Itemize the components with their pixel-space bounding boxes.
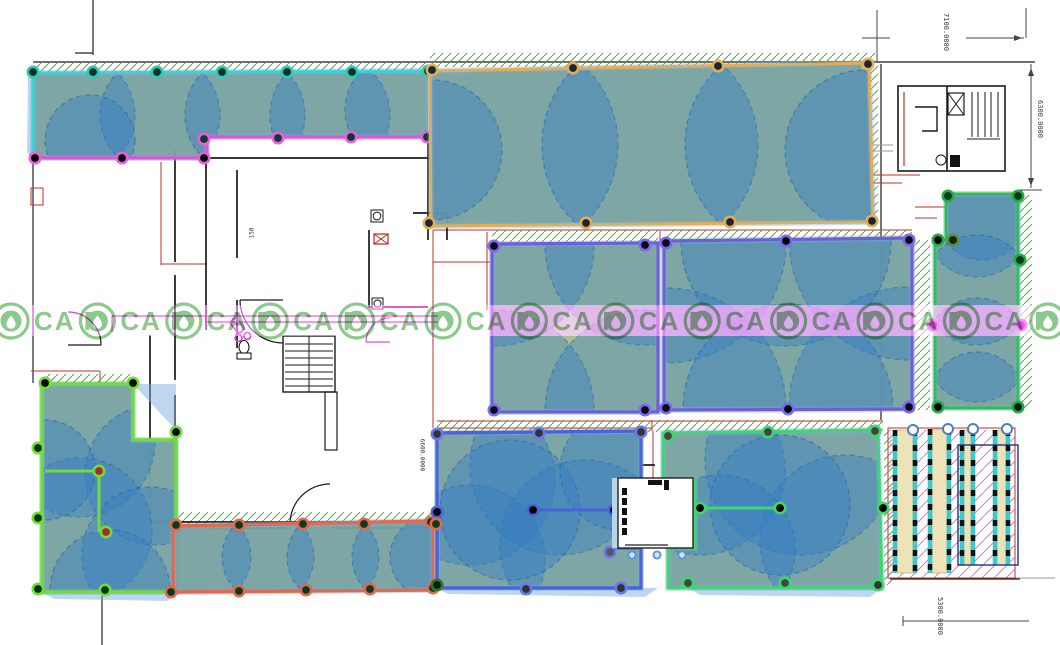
device-dot[interactable] [430, 518, 443, 531]
elevator-mark [622, 498, 627, 505]
device-dot[interactable] [872, 579, 885, 592]
watermark-row: CA PCA PCA PCA PCA PCA PCA PCA PCA PCA P… [0, 304, 1060, 338]
device-dot[interactable] [233, 585, 246, 598]
device-dot[interactable] [281, 66, 294, 79]
dimension-label: 5300.0000 [936, 597, 944, 635]
device-dot[interactable] [170, 519, 183, 532]
device-dot[interactable] [615, 582, 628, 595]
device-dot[interactable] [116, 152, 129, 165]
device-dot[interactable] [431, 579, 444, 592]
device-dot[interactable] [877, 502, 890, 515]
device-dot[interactable] [358, 518, 371, 531]
device-dot-center[interactable] [34, 585, 42, 593]
device-dot-center[interactable] [637, 428, 645, 436]
device-dot[interactable] [660, 402, 673, 415]
device-dot-center[interactable] [535, 429, 543, 437]
device-dot[interactable] [39, 377, 52, 390]
device-dot-center[interactable] [432, 520, 440, 528]
device-dot[interactable] [903, 401, 916, 414]
device-dot[interactable] [423, 217, 436, 230]
device-dot-center[interactable] [949, 236, 957, 244]
device-dot-center[interactable] [1014, 403, 1022, 411]
device-dot-center[interactable] [235, 587, 243, 595]
device-dot-center[interactable] [102, 528, 110, 536]
device-dot[interactable] [639, 404, 652, 417]
device-dot-center[interactable] [34, 514, 42, 522]
device-dot-center[interactable] [879, 504, 887, 512]
dimension-label: 150 [249, 228, 256, 239]
device-dot-center[interactable] [347, 133, 355, 141]
elevator-mark [622, 528, 627, 535]
device-dot-center[interactable] [784, 405, 792, 413]
device-dot[interactable] [198, 133, 211, 146]
dimension-label: 7100.0000 [942, 13, 950, 51]
device-dot-center[interactable] [582, 219, 590, 227]
device-dot-center[interactable] [172, 428, 180, 436]
device-dot[interactable] [1012, 401, 1025, 414]
device-dot-center[interactable] [366, 585, 374, 593]
elevator-mark [622, 518, 627, 525]
device-dot-center[interactable] [569, 64, 577, 72]
device-dot[interactable] [151, 66, 164, 79]
device-dot-center[interactable] [235, 521, 243, 529]
panel-bar-fill [964, 430, 971, 565]
device-dot[interactable] [32, 512, 45, 525]
device-dot-center[interactable] [433, 430, 441, 438]
device-dot[interactable] [32, 442, 45, 455]
device-dot[interactable] [869, 425, 882, 438]
floor-plan-canvas: CA PCA PCA PCA PCA PCA PCA PCA PCA PCA P… [0, 0, 1060, 645]
device-dot-center[interactable] [934, 236, 942, 244]
device-dot[interactable] [272, 132, 285, 145]
device-dot-center[interactable] [776, 504, 784, 512]
device-dot-center[interactable] [726, 218, 734, 226]
zone-strip-south [159, 511, 470, 603]
device-dot[interactable] [774, 502, 787, 515]
device-dot-center[interactable] [905, 236, 913, 244]
device-dot-center[interactable] [218, 68, 226, 76]
dimension-label: 6300.0000 [1036, 100, 1044, 138]
device-dot[interactable] [198, 152, 211, 165]
panel-valve-circle[interactable] [908, 425, 918, 435]
device-dot-center[interactable] [905, 403, 913, 411]
device-dot-center[interactable] [641, 241, 649, 249]
device-dot-center[interactable] [153, 68, 161, 76]
device-dot[interactable] [762, 426, 775, 439]
device-dot[interactable] [527, 504, 540, 517]
device-dot-center[interactable] [433, 508, 441, 516]
toilet-tank [237, 353, 251, 359]
device-dot[interactable] [866, 215, 879, 228]
device-dot[interactable] [87, 66, 100, 79]
device-dot[interactable] [662, 430, 675, 443]
device-dot-center[interactable] [302, 586, 310, 594]
device-dot[interactable] [694, 502, 707, 515]
device-dot-center[interactable] [529, 506, 537, 514]
device-dot[interactable] [678, 551, 687, 560]
device-dot-center[interactable] [490, 242, 498, 250]
zone-hall-north [362, 37, 945, 253]
device-dot[interactable] [426, 64, 439, 77]
device-dot[interactable] [712, 60, 725, 73]
device-dot-center[interactable] [274, 134, 282, 142]
device-dot[interactable] [932, 401, 945, 414]
device-dot[interactable] [93, 465, 106, 478]
device-dot-center[interactable] [1016, 256, 1024, 264]
device-dot[interactable] [297, 518, 310, 531]
device-dot[interactable] [431, 428, 444, 441]
device-dot[interactable] [862, 58, 875, 71]
elevator-mark [622, 508, 627, 515]
device-dot[interactable] [782, 403, 795, 416]
device-dot[interactable] [100, 526, 113, 539]
device-dot-center[interactable] [200, 135, 208, 143]
device-dot-center[interactable] [654, 552, 659, 557]
panel-bar-fill [897, 430, 913, 573]
device-dot-center[interactable] [934, 403, 942, 411]
device-dot-center[interactable] [29, 68, 37, 76]
device-dot[interactable] [942, 190, 955, 203]
device-dot-center[interactable] [299, 520, 307, 528]
device-dot-center[interactable] [89, 68, 97, 76]
device-dot[interactable] [431, 506, 444, 519]
device-dot[interactable] [628, 551, 637, 560]
panel-bar-fill [932, 429, 947, 573]
device-dot[interactable] [520, 583, 533, 596]
device-dot[interactable] [660, 237, 673, 250]
device-dot-center[interactable] [95, 467, 103, 475]
device-dot-center[interactable] [679, 552, 684, 557]
dimension-label: 6600.0000 [419, 439, 426, 472]
device-dot-center[interactable] [782, 237, 790, 245]
device-dot[interactable] [903, 234, 916, 247]
device-dot[interactable] [639, 239, 652, 252]
device-dot[interactable] [635, 426, 648, 439]
device-dot[interactable] [170, 426, 183, 439]
device-dot[interactable] [346, 66, 359, 79]
toilet-bowl [239, 341, 249, 354]
device-dot-center[interactable] [172, 521, 180, 529]
device-dot-center[interactable] [696, 504, 704, 512]
device-dot-center[interactable] [360, 520, 368, 528]
device-dot[interactable] [216, 66, 229, 79]
device-dot[interactable] [233, 519, 246, 532]
elevator-mark [622, 488, 627, 495]
device-dot-center[interactable] [41, 379, 49, 387]
device-dot[interactable] [1012, 190, 1025, 203]
device-dot[interactable] [300, 584, 313, 597]
device-dot[interactable] [533, 427, 546, 440]
device-dot[interactable] [99, 584, 112, 597]
device-dot-center[interactable] [944, 192, 952, 200]
device-dot[interactable] [488, 404, 501, 417]
device-dot-center[interactable] [629, 552, 634, 557]
green-hatch [1020, 195, 1032, 408]
device-dot-center[interactable] [428, 66, 436, 74]
elevator-door-mark [648, 480, 662, 485]
device-dot-center[interactable] [764, 428, 772, 436]
device-dot-center[interactable] [522, 585, 530, 593]
device-dot[interactable] [580, 217, 593, 230]
device-dot-center[interactable] [129, 379, 137, 387]
panel-valve-circle[interactable] [1002, 424, 1012, 434]
device-dot-center[interactable] [781, 579, 789, 587]
device-dot-center[interactable] [868, 217, 876, 225]
device-dot-center[interactable] [433, 581, 441, 589]
device-dot[interactable] [724, 216, 737, 229]
device-dot-center[interactable] [664, 432, 672, 440]
elevator-outline [618, 478, 693, 548]
device-dot-center[interactable] [283, 68, 291, 76]
device-dot[interactable] [1014, 254, 1027, 267]
device-dot-center[interactable] [641, 406, 649, 414]
device-dot[interactable] [32, 583, 45, 596]
device-dot-center[interactable] [606, 548, 614, 556]
panel-valve-circle[interactable] [968, 424, 978, 434]
device-dot[interactable] [682, 577, 695, 590]
device-dot-center[interactable] [167, 588, 175, 596]
device-dot-center[interactable] [118, 154, 126, 162]
device-dot-center[interactable] [714, 62, 722, 70]
device-dot-center[interactable] [662, 404, 670, 412]
device-dot-center[interactable] [662, 239, 670, 247]
outbuilding [898, 86, 1005, 171]
device-dot[interactable] [779, 577, 792, 590]
elevator-door-mark [664, 480, 669, 490]
outbuilding-toilet [936, 155, 946, 165]
floor-plan-svg: CA PCA PCA PCA PCA PCA PCA PCA PCA PCA P… [0, 0, 1060, 645]
device-dot[interactable] [345, 131, 358, 144]
device-dot-center[interactable] [348, 68, 356, 76]
outbuilding-fixture [950, 155, 960, 167]
device-dot-center[interactable] [864, 60, 872, 68]
device-dot-center[interactable] [684, 579, 692, 587]
device-dot-center[interactable] [34, 444, 42, 452]
panel-bar-fill [997, 430, 1006, 565]
device-dot-center[interactable] [871, 427, 879, 435]
device-dot[interactable] [932, 234, 945, 247]
device-dot[interactable] [364, 583, 377, 596]
device-dot[interactable] [567, 62, 580, 75]
elevator-block [612, 478, 693, 548]
elevator-wall-strip [612, 478, 618, 548]
device-dot-center[interactable] [200, 154, 208, 162]
device-dot-center[interactable] [425, 219, 433, 227]
panel-valve-circle[interactable] [943, 424, 953, 434]
device-dot-center[interactable] [31, 154, 39, 162]
device-dot-center[interactable] [101, 586, 109, 594]
device-dot[interactable] [27, 66, 40, 79]
device-dot[interactable] [29, 152, 42, 165]
device-dot-center[interactable] [1014, 192, 1022, 200]
device-dot[interactable] [488, 240, 501, 253]
device-dot[interactable] [165, 586, 178, 599]
device-dot[interactable] [127, 377, 140, 390]
device-dot-center[interactable] [490, 406, 498, 414]
device-dot-center[interactable] [874, 581, 882, 589]
device-dot[interactable] [780, 235, 793, 248]
device-dot[interactable] [653, 551, 662, 560]
device-dot[interactable] [947, 234, 960, 247]
device-dot-center[interactable] [617, 584, 625, 592]
